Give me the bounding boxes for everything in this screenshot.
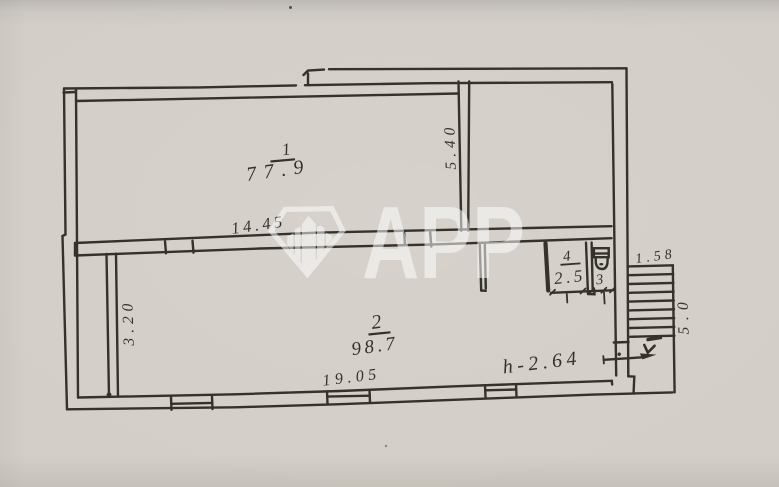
svg-text:3: 3 — [594, 272, 604, 289]
svg-text:APP: APP — [362, 185, 525, 300]
svg-text:5.0: 5.0 — [674, 295, 692, 334]
svg-text:5.40: 5.40 — [441, 122, 460, 170]
svg-text:2.5: 2.5 — [553, 266, 587, 288]
svg-text:3.20: 3.20 — [119, 298, 138, 347]
